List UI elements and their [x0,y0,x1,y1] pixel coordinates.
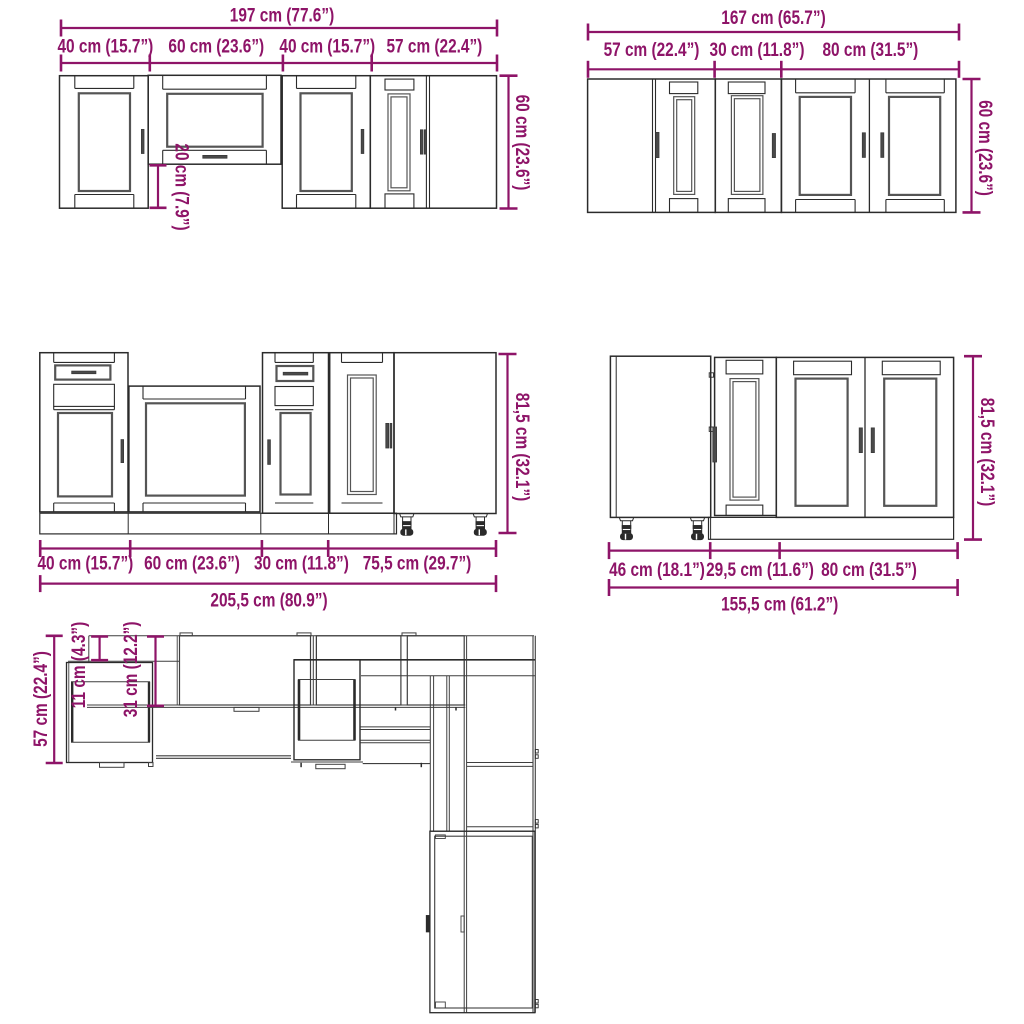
svg-text:155,5 cm (61.2”): 155,5 cm (61.2”) [721,594,838,615]
svg-text:75,5 cm (29.7”): 75,5 cm (29.7”) [363,554,472,575]
svg-text:40 cm (15.7”): 40 cm (15.7”) [279,37,375,58]
svg-text:40 cm (15.7”): 40 cm (15.7”) [58,37,154,58]
svg-text:40 cm (15.7”): 40 cm (15.7”) [38,554,134,575]
svg-text:30 cm (11.8”): 30 cm (11.8”) [710,40,805,61]
svg-text:81,5 cm (32.1”): 81,5 cm (32.1”) [976,398,997,507]
svg-text:57 cm (22.4”): 57 cm (22.4”) [387,37,483,58]
svg-text:31 cm (12.2”): 31 cm (12.2”) [121,622,142,718]
svg-text:30 cm (11.8”): 30 cm (11.8”) [254,554,349,575]
svg-text:60 cm (23.6”): 60 cm (23.6”) [144,554,240,575]
svg-text:60 cm (23.6”): 60 cm (23.6”) [511,95,532,191]
svg-text:57 cm (22.4”): 57 cm (22.4”) [31,651,52,747]
svg-text:60 cm (23.6”): 60 cm (23.6”) [168,37,264,58]
svg-text:57 cm (22.4”): 57 cm (22.4”) [604,40,700,61]
svg-text:11 cm (4.3”): 11 cm (4.3”) [69,622,90,708]
svg-text:205,5 cm (80.9”): 205,5 cm (80.9”) [210,591,327,612]
svg-text:81,5 cm (32.1”): 81,5 cm (32.1”) [511,393,532,502]
svg-text:167 cm (65.7”): 167 cm (65.7”) [721,8,825,29]
svg-text:80 cm (31.5”): 80 cm (31.5”) [823,40,919,61]
svg-text:60 cm (23.6”): 60 cm (23.6”) [974,100,995,196]
svg-text:29,5 cm (11.6”): 29,5 cm (11.6”) [706,560,814,581]
svg-text:80 cm (31.5”): 80 cm (31.5”) [821,560,917,581]
svg-text:197 cm (77.6”): 197 cm (77.6”) [230,5,334,26]
svg-text:20 cm (7.9”): 20 cm (7.9”) [171,143,192,230]
svg-text:46 cm (18.1”): 46 cm (18.1”) [609,560,705,581]
